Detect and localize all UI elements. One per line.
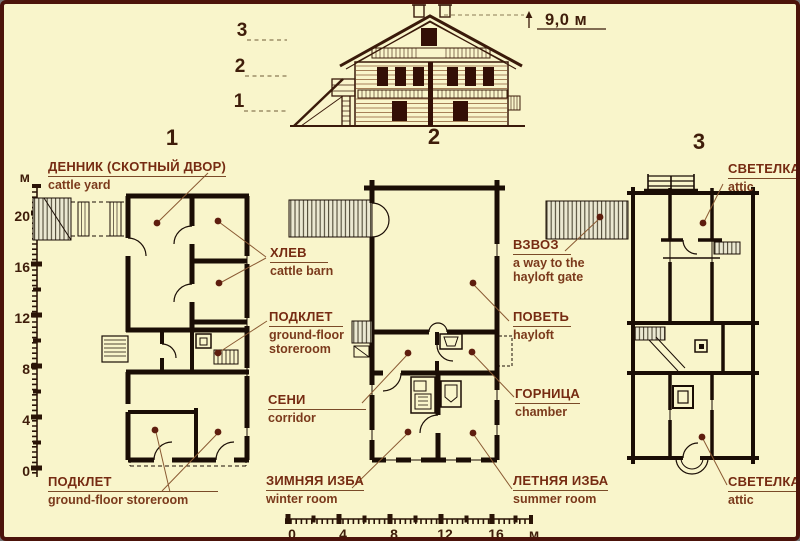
label-cattle-barn: ХЛЕВ cattle barn	[270, 244, 333, 278]
label-hayloft-ramp-en: a way to the hayloft gate	[513, 256, 585, 284]
label-storeroom-bottom-ru: ПОДКЛЕТ	[48, 475, 218, 492]
label-storeroom-mid-ru: ПОДКЛЕТ	[269, 310, 343, 327]
label-attic-bottom-en: attic	[728, 493, 800, 507]
label-winter-room-en: winter room	[266, 492, 364, 506]
vscale-8: 8	[6, 362, 30, 378]
floor-marker-1: 1	[230, 91, 248, 112]
label-corridor-ru: СЕНИ	[268, 393, 366, 410]
label-attic-top-en: attic	[728, 180, 800, 194]
label-cattle-yard-ru: ДЕННИК (СКОТНЫЙ ДВОР)	[48, 160, 226, 177]
label-storeroom-mid: ПОДКЛЕТ ground-floor storeroom	[269, 308, 344, 356]
floor-marker-2: 2	[231, 56, 249, 77]
plan-3-drawing	[546, 174, 759, 474]
reference-dots	[152, 214, 707, 441]
diagram-canvas: 3 2 1 9,0 м 1 2 3 м 20 16 12 8 4 0 0 4 8…	[0, 0, 800, 541]
plan-number-2: 2	[423, 125, 445, 150]
vscale-16: 16	[6, 260, 30, 276]
label-cattle-barn-en: cattle barn	[270, 264, 333, 278]
label-summer-room: ЛЕТНЯЯ ИЗБА summer room	[513, 472, 608, 506]
vscale-unit: м	[6, 170, 30, 186]
label-chamber-en: chamber	[515, 405, 580, 419]
label-attic-bottom-ru: СВЕТЕЛКА	[728, 475, 800, 492]
vscale-4: 4	[6, 413, 30, 429]
label-attic-top-ru: СВЕТЕЛКА	[728, 162, 800, 179]
hscale-12: 12	[433, 527, 457, 541]
hscale-16: 16	[484, 527, 508, 541]
plan-number-3: 3	[688, 130, 710, 155]
label-hayloft: ПОВЕТЬ hayloft	[513, 308, 571, 342]
label-hayloft-ramp: ВЗВОЗ a way to the hayloft gate	[513, 236, 585, 284]
label-winter-room-ru: ЗИМНЯЯ ИЗБА	[266, 474, 364, 491]
label-summer-room-ru: ЛЕТНЯЯ ИЗБА	[513, 474, 608, 491]
label-hayloft-ramp-ru: ВЗВОЗ	[513, 238, 571, 255]
label-corridor: СЕНИ corridor	[268, 391, 366, 425]
horizontal-scale	[285, 514, 533, 524]
line-art	[4, 4, 796, 537]
hscale-unit: м	[522, 527, 546, 541]
label-chamber-ru: ГОРНИЦА	[515, 387, 580, 404]
label-cattle-yard: ДЕННИК (СКОТНЫЙ ДВОР) cattle yard	[48, 158, 226, 192]
label-storeroom-mid-en: ground-floor storeroom	[269, 328, 344, 356]
label-hayloft-ru: ПОВЕТЬ	[513, 310, 571, 327]
label-winter-room: ЗИМНЯЯ ИЗБА winter room	[266, 472, 364, 506]
label-corridor-en: corridor	[268, 411, 366, 425]
label-chamber: ГОРНИЦА chamber	[515, 385, 580, 419]
hscale-0: 0	[280, 527, 304, 541]
label-attic-bottom: СВЕТЕЛКА attic	[728, 473, 800, 507]
vscale-20: 20	[6, 209, 30, 225]
label-storeroom-bottom-en: ground-floor storeroom	[48, 493, 218, 507]
floor-marker-3: 3	[233, 20, 251, 41]
vscale-0: 0	[6, 464, 30, 480]
plan-number-1: 1	[161, 126, 183, 151]
label-attic-top: СВЕТЕЛКА attic	[728, 160, 800, 194]
vscale-12: 12	[6, 311, 30, 327]
label-storeroom-bottom: ПОДКЛЕТ ground-floor storeroom	[48, 473, 218, 507]
label-cattle-barn-ru: ХЛЕВ	[270, 246, 328, 263]
label-cattle-yard-en: cattle yard	[48, 178, 226, 192]
plan-1-drawing	[33, 196, 249, 466]
hscale-8: 8	[382, 527, 406, 541]
height-dimension: 9,0 м	[545, 11, 587, 29]
hscale-4: 4	[331, 527, 355, 541]
label-hayloft-en: hayloft	[513, 328, 571, 342]
label-summer-room-en: summer room	[513, 492, 608, 506]
